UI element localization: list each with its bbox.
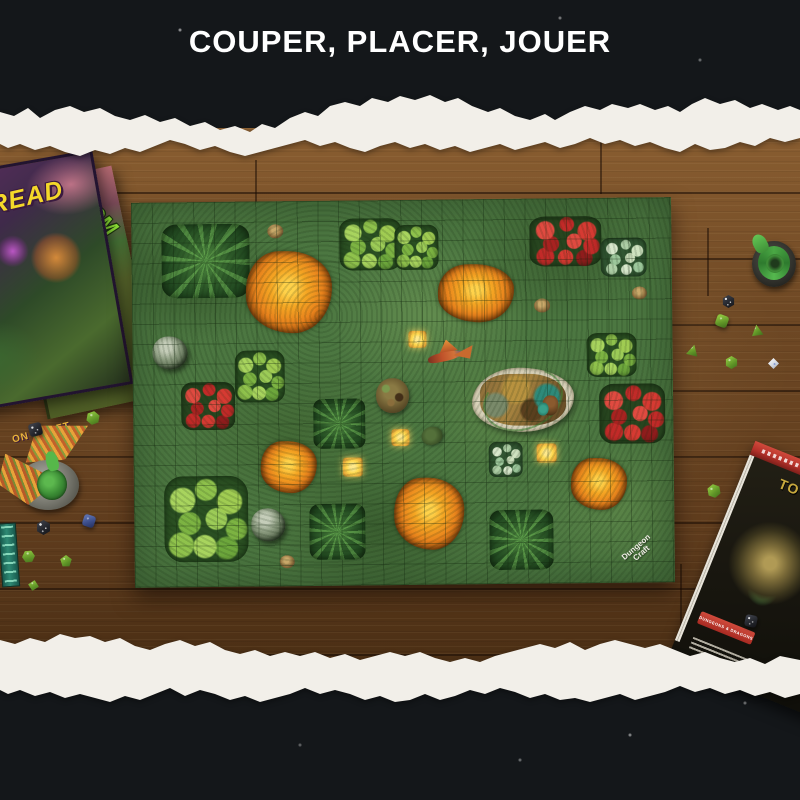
miniature-goblin	[537, 389, 563, 422]
box-dread-title: E DREAD	[0, 175, 66, 230]
poster: COUPER, PLACER, JOUER DOOM E DREAD ON CR…	[0, 0, 800, 800]
plank-seam	[707, 228, 709, 296]
torn-paper-bottom	[0, 624, 800, 708]
torn-paper-top	[0, 82, 800, 160]
book-title-fragment: TO	[776, 475, 800, 498]
miniature-dragon	[424, 341, 474, 370]
mat-miniatures-layer	[131, 197, 675, 588]
miniature-mound	[376, 378, 409, 413]
miniature-couatl	[5, 425, 105, 517]
battle-mat: Dungeon Craft	[131, 197, 675, 588]
miniature-snake	[750, 238, 800, 290]
miniature-turtle	[419, 424, 444, 447]
